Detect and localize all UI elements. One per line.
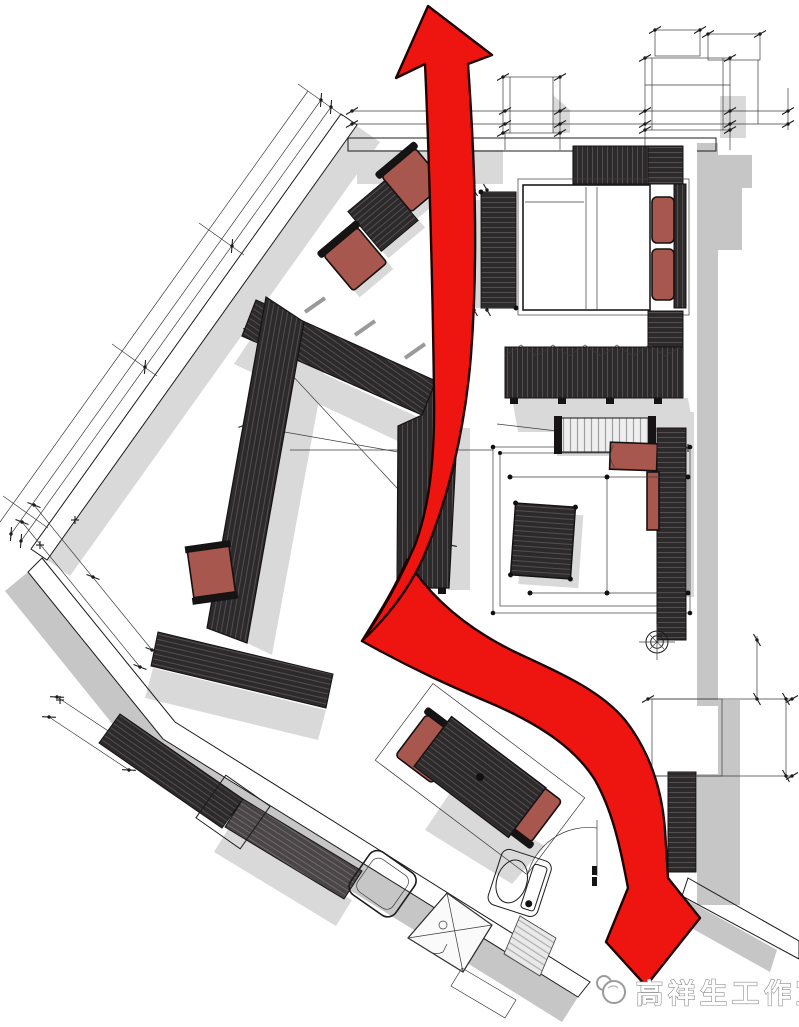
seat-cushion	[610, 442, 658, 471]
watermark: 高祥生工作室	[597, 976, 799, 1010]
coffee-table	[508, 500, 578, 581]
floor-plan-image: 高祥生工作室	[0, 0, 799, 1027]
kitchen-counter-wall-arm	[99, 714, 243, 828]
duvet-fold-lines	[525, 187, 597, 309]
bed-end-bench	[481, 192, 516, 308]
right-wall	[697, 143, 718, 905]
sliding-wardrobe	[505, 345, 683, 404]
watermark-text: 高祥生工作室	[636, 978, 799, 1010]
bedroom-closet	[573, 146, 648, 184]
nightstand-top	[648, 146, 683, 184]
vanity-stool	[185, 540, 239, 605]
bench-cushion	[647, 472, 659, 530]
nightstand-bottom	[648, 311, 683, 347]
right-wall-dark-segment	[668, 772, 696, 872]
right-wall-lower	[718, 700, 740, 905]
bed-pillow	[652, 197, 674, 243]
studio-logo-icon	[597, 976, 625, 1003]
right-wall-step2	[718, 188, 742, 250]
headboard	[674, 184, 686, 308]
lounge-area	[497, 416, 691, 640]
arrow-upper-ribbon	[362, 6, 492, 641]
bed-pillow	[652, 249, 674, 300]
window-bench	[657, 428, 686, 640]
right-wall-step	[718, 155, 752, 188]
balcony-shadow	[720, 96, 746, 138]
bed-mattress	[523, 185, 650, 310]
wardrobe-body	[505, 347, 683, 398]
bedroom-wall-gap	[683, 148, 697, 184]
right-window-gap	[697, 706, 718, 774]
floor-plan-svg: 高祥生工作室	[0, 0, 799, 1027]
